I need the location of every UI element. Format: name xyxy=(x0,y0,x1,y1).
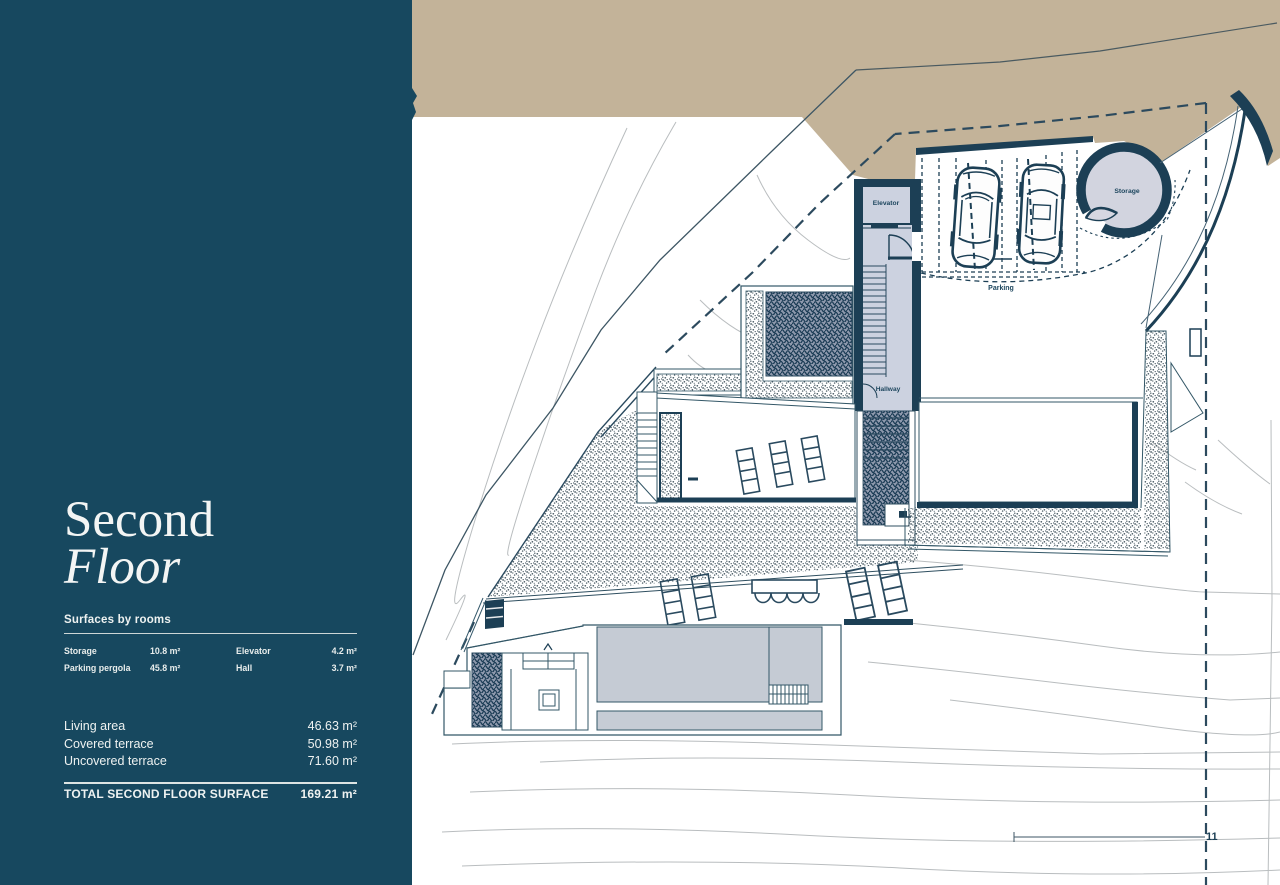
svg-text:Hallway: Hallway xyxy=(876,386,901,393)
svg-text:Elevator: Elevator xyxy=(873,200,900,207)
svg-text:11: 11 xyxy=(1206,831,1218,843)
svg-text:Parking: Parking xyxy=(988,285,1014,292)
svg-text:Storage: Storage xyxy=(1114,188,1140,195)
